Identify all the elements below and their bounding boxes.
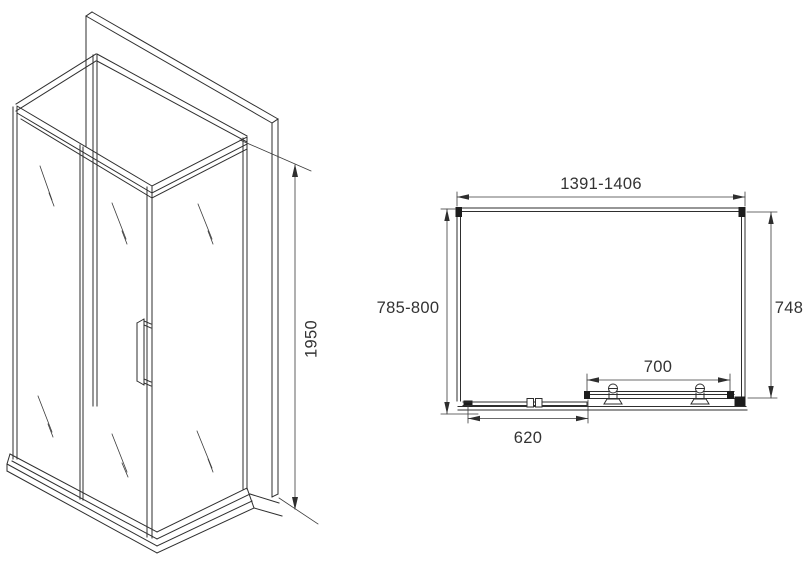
top-rails [16, 54, 247, 198]
height-dimension-label: 1950 [302, 320, 320, 358]
height-dimension: 1950 [240, 140, 320, 524]
back-wall-panel [86, 12, 282, 516]
side-panel-dimension-label: 748 [775, 299, 803, 317]
depth-dimension: 785-800 [377, 209, 478, 414]
width-dimension: 1391-1406 [457, 175, 745, 206]
depth-dimension-label: 785-800 [377, 299, 440, 317]
side-panel-dimension: 748 [747, 212, 803, 398]
shower-enclosure-drawing: 1950 [0, 0, 810, 563]
door-seam [80, 145, 83, 500]
sliding-door [584, 384, 734, 404]
glass-shine-marks [38, 166, 213, 477]
door-handle [137, 319, 151, 386]
fixed-panel-dimension-label: 620 [514, 429, 542, 447]
plan-glass-walls [457, 208, 745, 401]
width-dimension-label: 1391-1406 [560, 175, 642, 193]
right-wall-profile [739, 207, 746, 217]
track-right-end-block [735, 397, 746, 407]
frame-posts [13, 55, 247, 538]
panel-clamp [527, 399, 534, 408]
front-fixed-panel [463, 399, 587, 408]
door-dimension-label: 700 [644, 358, 672, 376]
door-dimension: 700 [587, 358, 730, 391]
isometric-view: 1950 [7, 12, 320, 553]
plan-view: 1391-1406 785-800 748 700 [377, 175, 804, 447]
technical-drawing-canvas: 1950 [0, 0, 810, 563]
panel-clamp [536, 399, 543, 408]
left-wall-profile [456, 207, 463, 217]
door-right-end-cap [727, 391, 734, 399]
door-left-end-cap [584, 391, 590, 399]
shower-tray [7, 454, 254, 553]
